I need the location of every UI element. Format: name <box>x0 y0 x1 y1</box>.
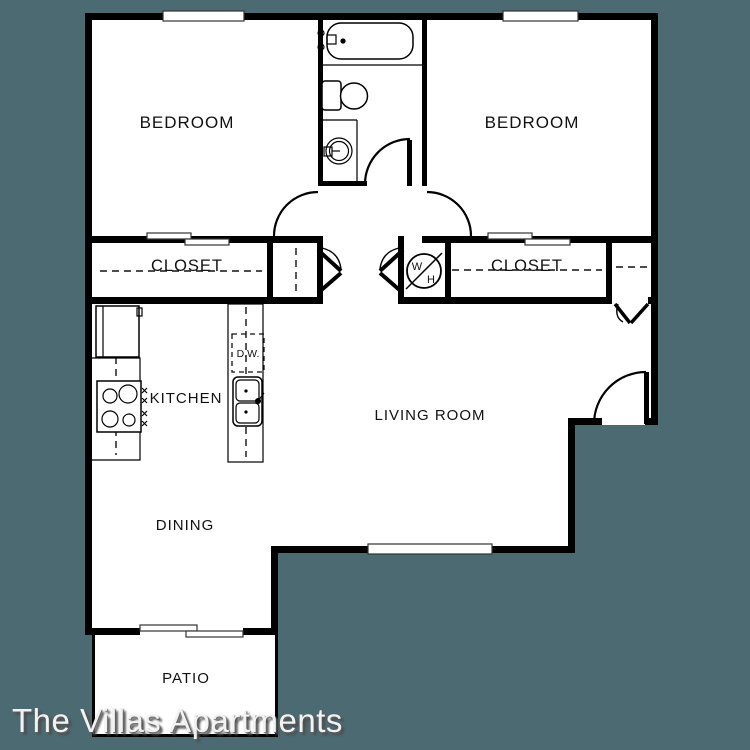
closet-left-label: CLOSET <box>151 257 223 275</box>
kitchen-label: KITCHEN <box>150 390 223 407</box>
water-heater-icon: W H <box>406 253 442 289</box>
closet-slider-left-a <box>147 233 191 239</box>
window-living-room <box>368 544 492 554</box>
window-bedroom-right <box>503 11 578 21</box>
water-heater-h-label: H <box>427 274 435 286</box>
floor-plan-flyer: W H BEDROOM BEDROOM CLOSET CLOSET KITCHE… <box>0 0 750 750</box>
dining-label: DINING <box>156 517 215 534</box>
closet-slider-right-b <box>525 239 570 245</box>
window-bedroom-left <box>163 11 244 21</box>
bathroom-door-panel <box>407 140 412 186</box>
floor-plan-drawing: W H BEDROOM BEDROOM CLOSET CLOSET KITCHE… <box>0 0 750 750</box>
patio-slider-a <box>140 625 197 631</box>
closet-right-label: CLOSET <box>491 257 563 275</box>
toilet-icon <box>341 83 368 109</box>
water-heater-w-label: W <box>412 261 423 273</box>
patio-slider-b <box>186 631 243 637</box>
bedroom-right-label: BEDROOM <box>485 113 580 132</box>
living-room-label: LIVING ROOM <box>374 407 485 424</box>
toilet-tank-icon <box>322 81 341 110</box>
patio-label: PATIO <box>162 670 210 687</box>
bathtub-icon <box>327 23 413 59</box>
dishwasher-label: D.W. <box>237 348 260 360</box>
bedroom-left-label: BEDROOM <box>140 113 235 132</box>
closet-slider-right-a <box>488 233 532 239</box>
community-title: The Villas Apartments <box>12 702 738 740</box>
tub-drain-icon <box>340 38 345 43</box>
closet-slider-left-b <box>185 239 229 245</box>
entry-door-panel <box>644 372 649 424</box>
